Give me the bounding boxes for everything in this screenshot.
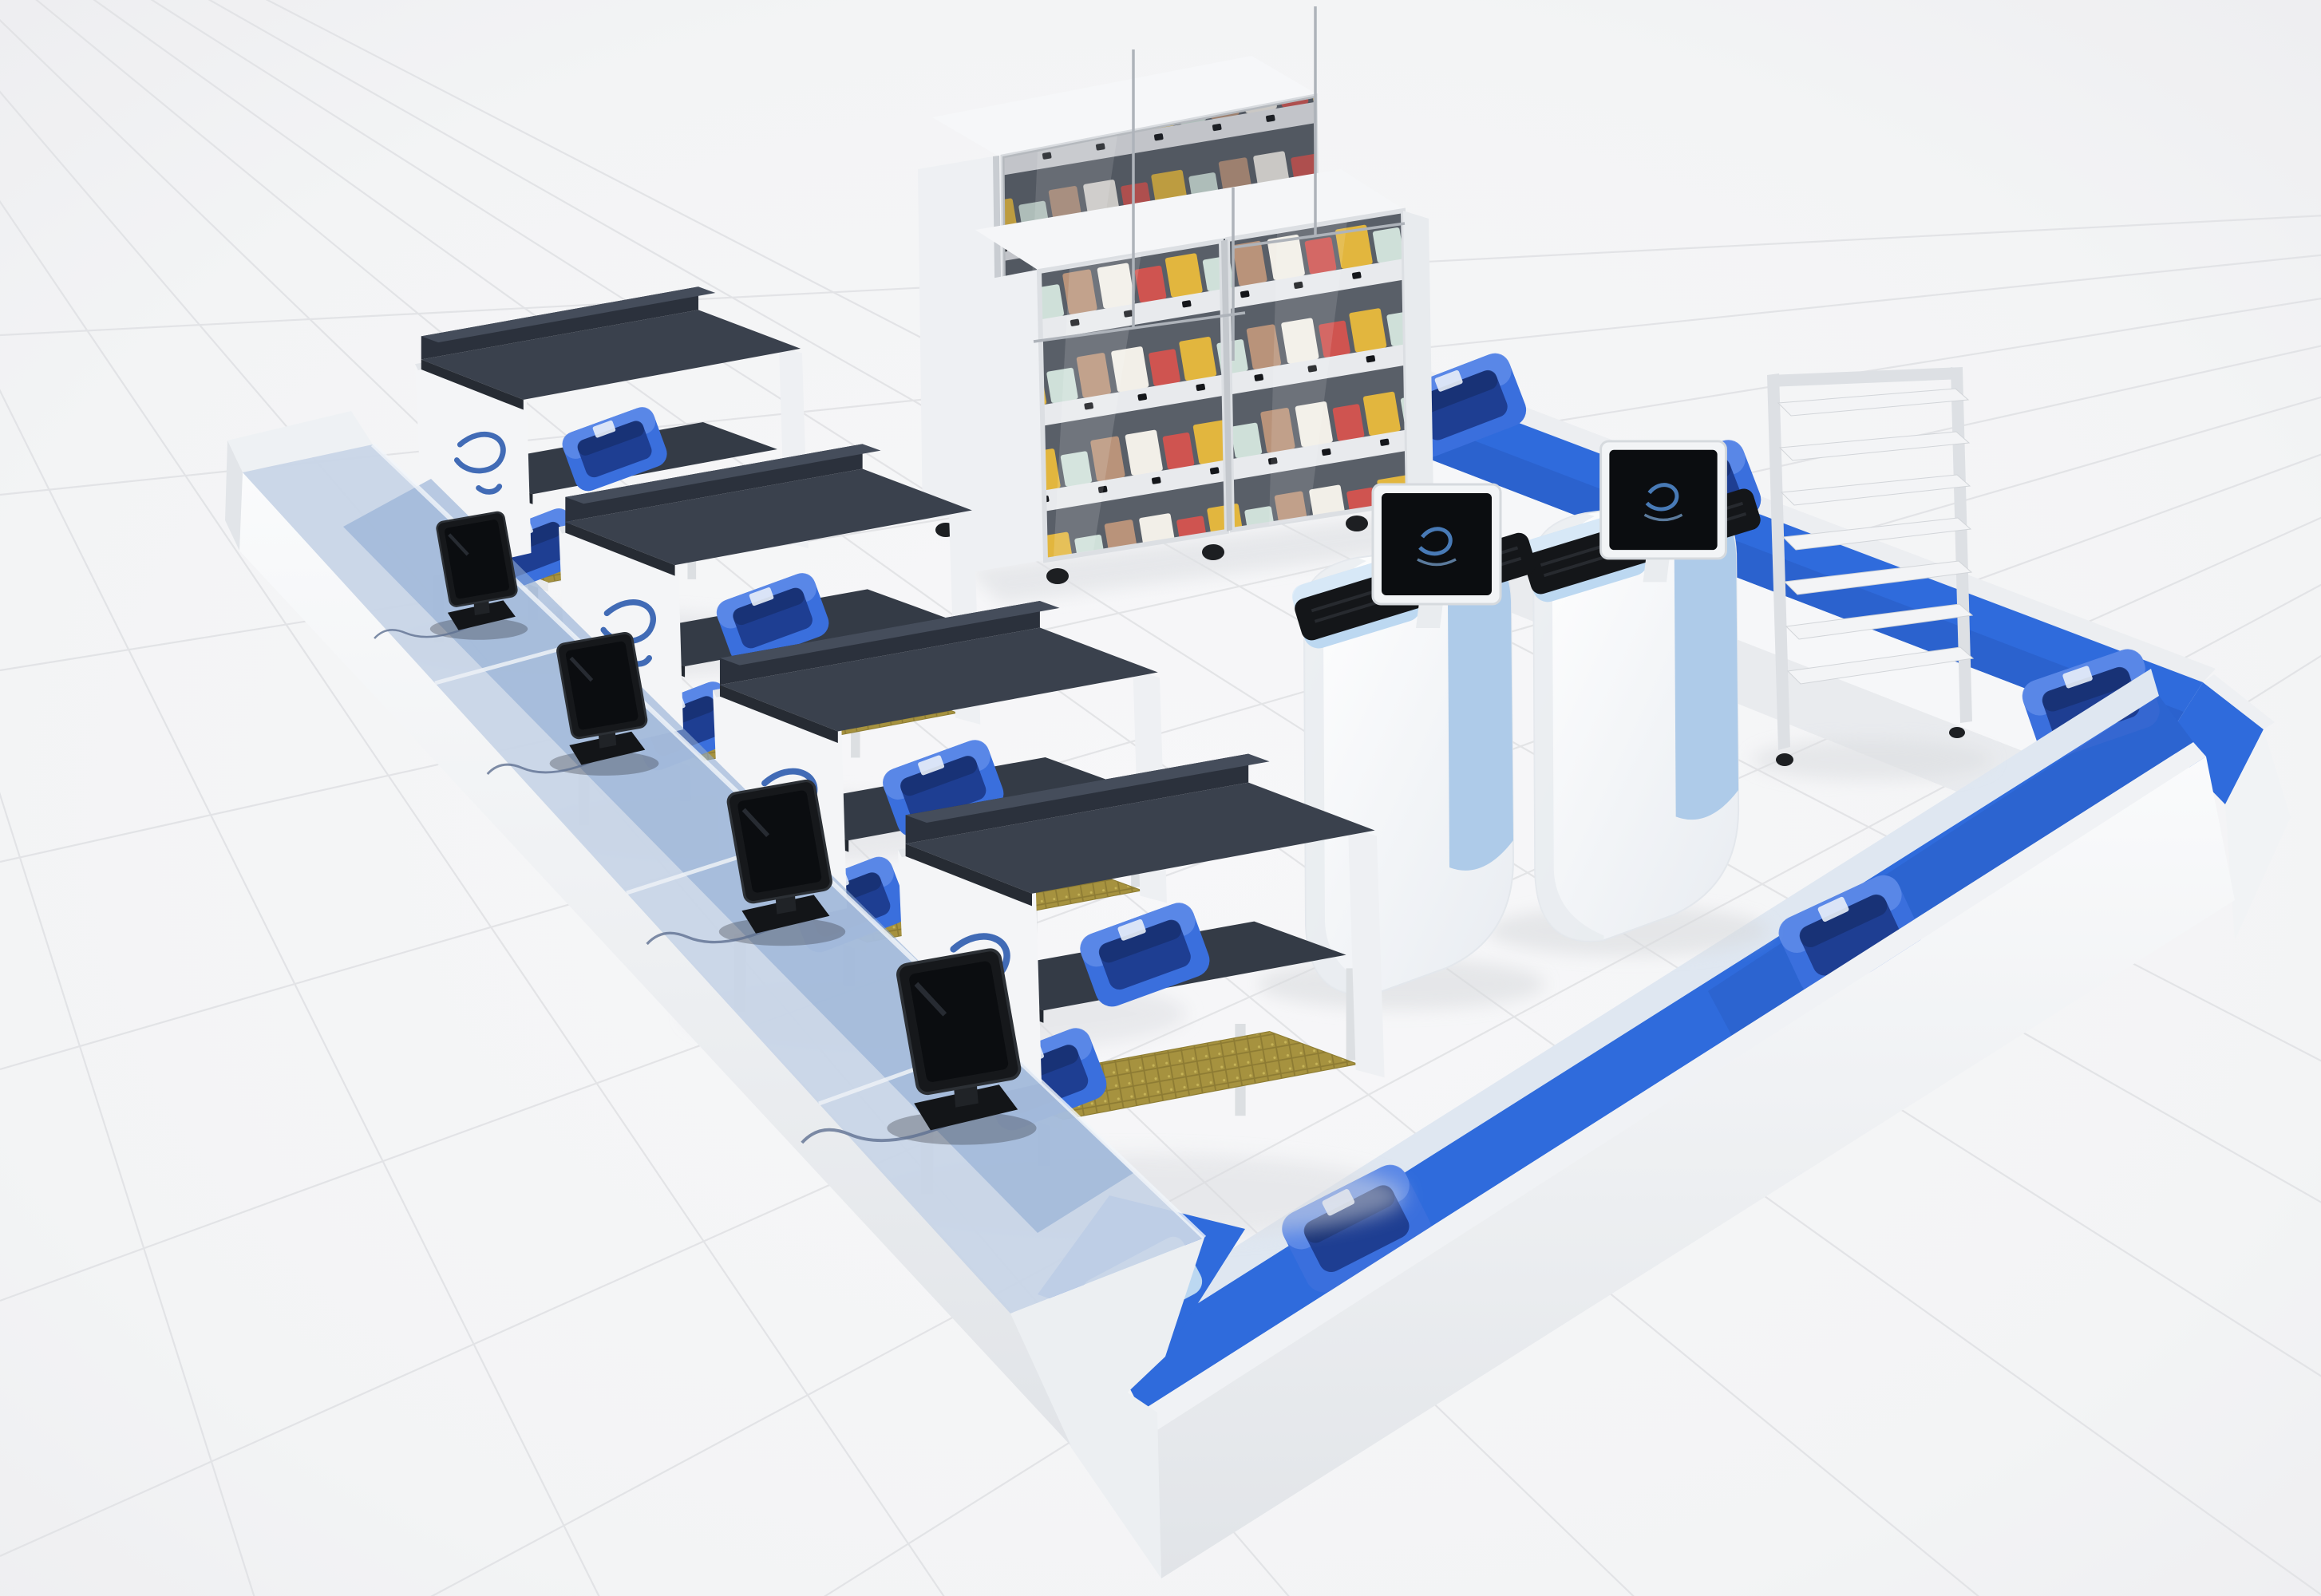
pharmacy-automation-render xyxy=(0,0,2321,1596)
rack-caster xyxy=(1776,753,1793,766)
cabinet-caster xyxy=(1202,544,1224,560)
cabinet-caster xyxy=(1046,568,1069,584)
front-cabinet-end xyxy=(1403,211,1433,503)
rack-caster xyxy=(1949,727,1965,738)
cabinet-caster xyxy=(1346,516,1368,531)
